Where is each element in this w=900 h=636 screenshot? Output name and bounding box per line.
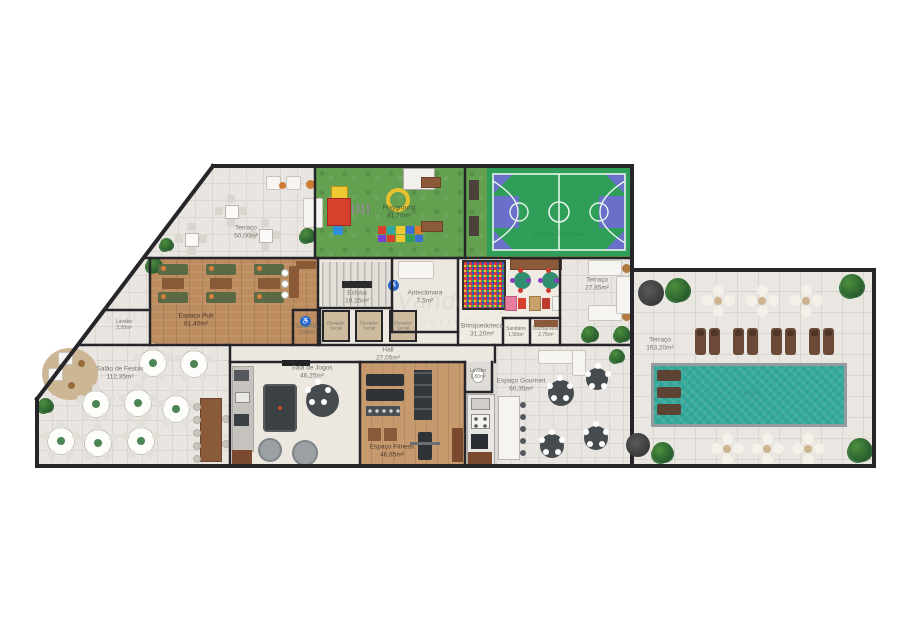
plant <box>300 228 315 243</box>
chair <box>520 438 526 444</box>
in-pool-lounger <box>657 404 681 415</box>
room-label-eclusa: Eclusa19,15m² <box>345 289 369 304</box>
terrace-table <box>178 226 204 252</box>
elevator: ElevadorSocial <box>322 310 350 342</box>
dining-table <box>498 396 520 460</box>
room-label-terraco-mid: Terraço27,85m² <box>585 276 609 291</box>
room-label-brinquedoteca: Brinquedoteca31,20m² <box>461 322 503 337</box>
bench <box>421 177 441 188</box>
room-label-terraco-top: Terraço50,00m² <box>234 224 258 239</box>
banquet-table <box>162 395 190 423</box>
barbell <box>410 442 440 445</box>
pub-sofa <box>254 264 284 275</box>
pouf <box>68 382 75 389</box>
kids-table <box>514 272 531 289</box>
accessibility-icon: ♿ <box>388 280 399 291</box>
billiard-ball <box>278 406 282 410</box>
stove <box>471 414 490 429</box>
weight-bench <box>418 432 432 460</box>
hopscotch-cell <box>396 226 404 234</box>
hopscotch-cell <box>387 235 395 243</box>
room-label-playground: Playground81,70m² <box>383 204 416 219</box>
room-label-lavabo-fitness: Lavabo1,80m² <box>470 369 486 381</box>
lounge-set <box>747 286 777 316</box>
chair <box>193 403 201 411</box>
armchair <box>58 352 73 365</box>
stair-rail <box>342 281 372 288</box>
sun-lounger <box>695 328 706 355</box>
banquet-table <box>127 427 155 455</box>
banquet-table <box>47 427 75 455</box>
room-label-sanitario: Sanitário1,50m² <box>506 327 526 339</box>
sink <box>235 392 250 403</box>
gourmet-sofa <box>572 350 586 376</box>
armchair <box>48 368 63 381</box>
hopscotch-cell <box>396 235 404 243</box>
plant <box>848 438 872 462</box>
chair <box>520 402 526 408</box>
dumbbell-rack <box>366 406 400 416</box>
bar-stool <box>281 291 289 299</box>
side-table <box>622 264 631 273</box>
ball-pit <box>462 260 506 310</box>
bench <box>421 221 443 232</box>
kids-table <box>542 272 559 289</box>
in-pool-lounger <box>657 387 681 398</box>
pub-table <box>162 278 184 289</box>
poker-table <box>306 384 339 417</box>
gourmet-table <box>586 368 608 390</box>
pub-sofa <box>254 292 284 303</box>
banquet-table <box>180 350 208 378</box>
terrace-bench <box>616 276 633 314</box>
pub-table <box>258 278 280 289</box>
hopscotch-cell <box>387 226 395 234</box>
hopscotch-cell <box>378 235 386 243</box>
banquet-table <box>82 390 110 418</box>
chair <box>520 450 526 456</box>
pub-table <box>210 278 232 289</box>
banquet-table <box>124 389 152 417</box>
room-label-ducha: Ducha/Vest.2,75m² <box>533 327 560 339</box>
treadmill <box>366 374 404 386</box>
plant <box>652 442 673 463</box>
sun-lounger <box>747 328 758 355</box>
bench <box>469 216 479 236</box>
toy-kitchen <box>505 296 517 311</box>
plant <box>38 398 53 413</box>
pub-sofa <box>206 292 236 303</box>
pub-bar-table <box>289 266 299 298</box>
sun-lounger <box>823 328 834 355</box>
room-label-jogos: Sala de Jogos46,25m² <box>291 364 332 379</box>
lounge-set <box>752 434 782 464</box>
treadmill <box>366 389 404 401</box>
hopscotch <box>378 226 423 242</box>
cabinet <box>468 452 492 464</box>
bar-stool <box>281 280 289 288</box>
sun-lounger <box>733 328 744 355</box>
plant <box>614 326 630 342</box>
room-label-hall: Hall27,05m² <box>376 346 400 361</box>
floor-hall-corridor <box>230 345 495 362</box>
room-label-san-pne: San. PNE3,04m² <box>296 325 318 337</box>
hopscotch-cell <box>406 226 414 234</box>
gourmet-table <box>584 426 608 450</box>
lounge-set <box>712 434 742 464</box>
room-label-pub: Espaço Pub61,40m² <box>178 312 213 327</box>
room-label-terraco-right: Terraço163,20m² <box>646 336 673 351</box>
banquet-table <box>84 429 112 457</box>
antechamber-closet <box>398 261 434 279</box>
lounge-chair-occupied <box>638 280 664 306</box>
sun-lounger <box>709 328 720 355</box>
toy-bench <box>510 259 562 270</box>
chair <box>222 415 230 423</box>
hopscotch-cell <box>415 235 423 243</box>
exercise-mat <box>368 428 381 441</box>
sun-lounger <box>809 328 820 355</box>
pub-sofa <box>158 292 188 303</box>
pouf <box>279 182 286 189</box>
room-label-lavabo-pub: Lavabo2,30m² <box>116 320 132 332</box>
floor-plan-canvas: ♿ ElevadorSocial ElevadorSocial Elevador… <box>0 0 900 636</box>
appliance <box>234 414 249 426</box>
elevator: ElevadorSocial <box>389 310 417 342</box>
sink <box>471 398 490 410</box>
chair <box>193 429 201 437</box>
gourmet-table <box>548 380 574 406</box>
basketball-court <box>487 168 631 256</box>
toy-cabinet <box>529 296 541 311</box>
terrace-bench <box>588 260 622 276</box>
room-label-piscina: Piscina <box>740 390 761 398</box>
fridge <box>471 434 488 449</box>
lounge-set <box>793 434 823 464</box>
room-label-gourmet: Espaço Gourmet60,35m² <box>497 377 546 392</box>
chair <box>193 455 201 463</box>
appliance <box>234 370 249 381</box>
in-pool-lounger <box>657 370 681 381</box>
gourmet-sofa <box>538 350 574 364</box>
plant <box>840 274 864 298</box>
toy-shelf <box>518 298 526 309</box>
play-tower-red <box>327 198 351 226</box>
locker-shelf <box>414 370 432 420</box>
floor-pub-wedge <box>78 258 150 345</box>
chair <box>520 414 526 420</box>
pouf <box>306 180 315 189</box>
room-label-quadra: Quadra Esportiva <box>534 231 585 239</box>
lounge-set <box>703 286 733 316</box>
console-sofa <box>303 198 323 228</box>
pub-sofa <box>206 264 236 275</box>
hopscotch-cell <box>378 226 386 234</box>
sun-lounger <box>785 328 796 355</box>
bar-stool <box>281 269 289 277</box>
room-label-salao: Salão de Festas112,35m² <box>97 365 144 380</box>
chair <box>222 440 230 448</box>
chair <box>520 426 526 432</box>
gourmet-table <box>540 434 564 458</box>
monkey-bars <box>352 204 369 214</box>
bench <box>469 180 479 200</box>
armchair <box>286 176 301 190</box>
plant <box>582 326 598 342</box>
toy-stand <box>552 296 561 311</box>
lounge-set <box>791 286 821 316</box>
room-label-fitness: Espaço Fitness46,85m² <box>370 443 414 458</box>
pub-sofa <box>158 264 188 275</box>
elevator: ElevadorSocial <box>355 310 383 342</box>
play-slide <box>333 226 343 235</box>
round-table <box>258 438 282 462</box>
cabinet <box>452 428 463 462</box>
round-table <box>292 440 318 466</box>
plant <box>666 278 690 302</box>
chair <box>193 442 201 450</box>
sun-lounger <box>771 328 782 355</box>
hopscotch-cell <box>406 235 414 243</box>
plant <box>160 238 173 251</box>
lounge-chair-occupied <box>626 433 650 457</box>
plant <box>610 349 624 363</box>
cabinet <box>232 450 252 465</box>
room-label-antecamara: Antecâmara7,5m² <box>407 289 442 304</box>
toy-shelf <box>542 298 550 309</box>
pouf <box>78 360 85 367</box>
chair <box>193 416 201 424</box>
exercise-mat <box>384 428 397 441</box>
wall-counter <box>296 261 316 269</box>
buffet-table <box>200 398 222 462</box>
terrace-table <box>218 198 244 224</box>
